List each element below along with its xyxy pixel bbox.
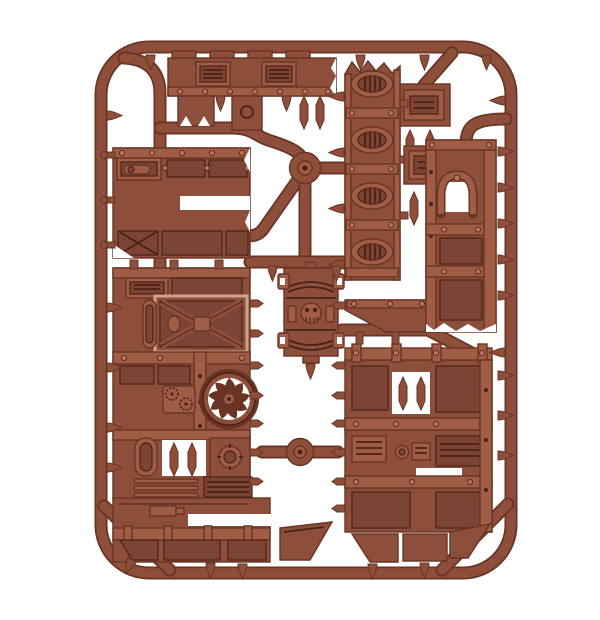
vent-oval xyxy=(351,127,393,153)
skull-emblem xyxy=(301,303,321,323)
pipe-row xyxy=(134,477,252,497)
capsule-detail-lower xyxy=(135,438,157,476)
capsule-detail xyxy=(143,300,156,348)
rail-hatch-right xyxy=(262,62,296,86)
vent-oval xyxy=(351,239,393,265)
porthole-detail xyxy=(210,438,250,478)
right-lower-wall-part xyxy=(345,344,513,579)
grate-detail xyxy=(352,436,386,462)
vent-oval xyxy=(351,71,393,97)
vent-oval xyxy=(351,183,393,209)
injection-hub-bottom xyxy=(287,439,314,466)
trapezoid-wall-part xyxy=(280,522,332,560)
injection-hub-top xyxy=(290,153,321,184)
piston-channel xyxy=(117,158,161,180)
left-upper-wall-part xyxy=(101,148,251,258)
arched-wall-part xyxy=(426,140,513,332)
corner-clip xyxy=(278,274,289,289)
sprue-photo: Brown plastic model-kit sprue frame hold… xyxy=(0,0,600,620)
rail-hatch-left xyxy=(196,62,230,86)
skull-panel-part xyxy=(278,262,344,379)
corner-clip xyxy=(278,333,289,348)
crenellated-rail-part xyxy=(168,51,336,130)
x-braced-door xyxy=(155,296,247,352)
cog-plate xyxy=(163,386,195,413)
corner-clip xyxy=(333,333,344,348)
port-and-box-detail xyxy=(396,443,431,460)
